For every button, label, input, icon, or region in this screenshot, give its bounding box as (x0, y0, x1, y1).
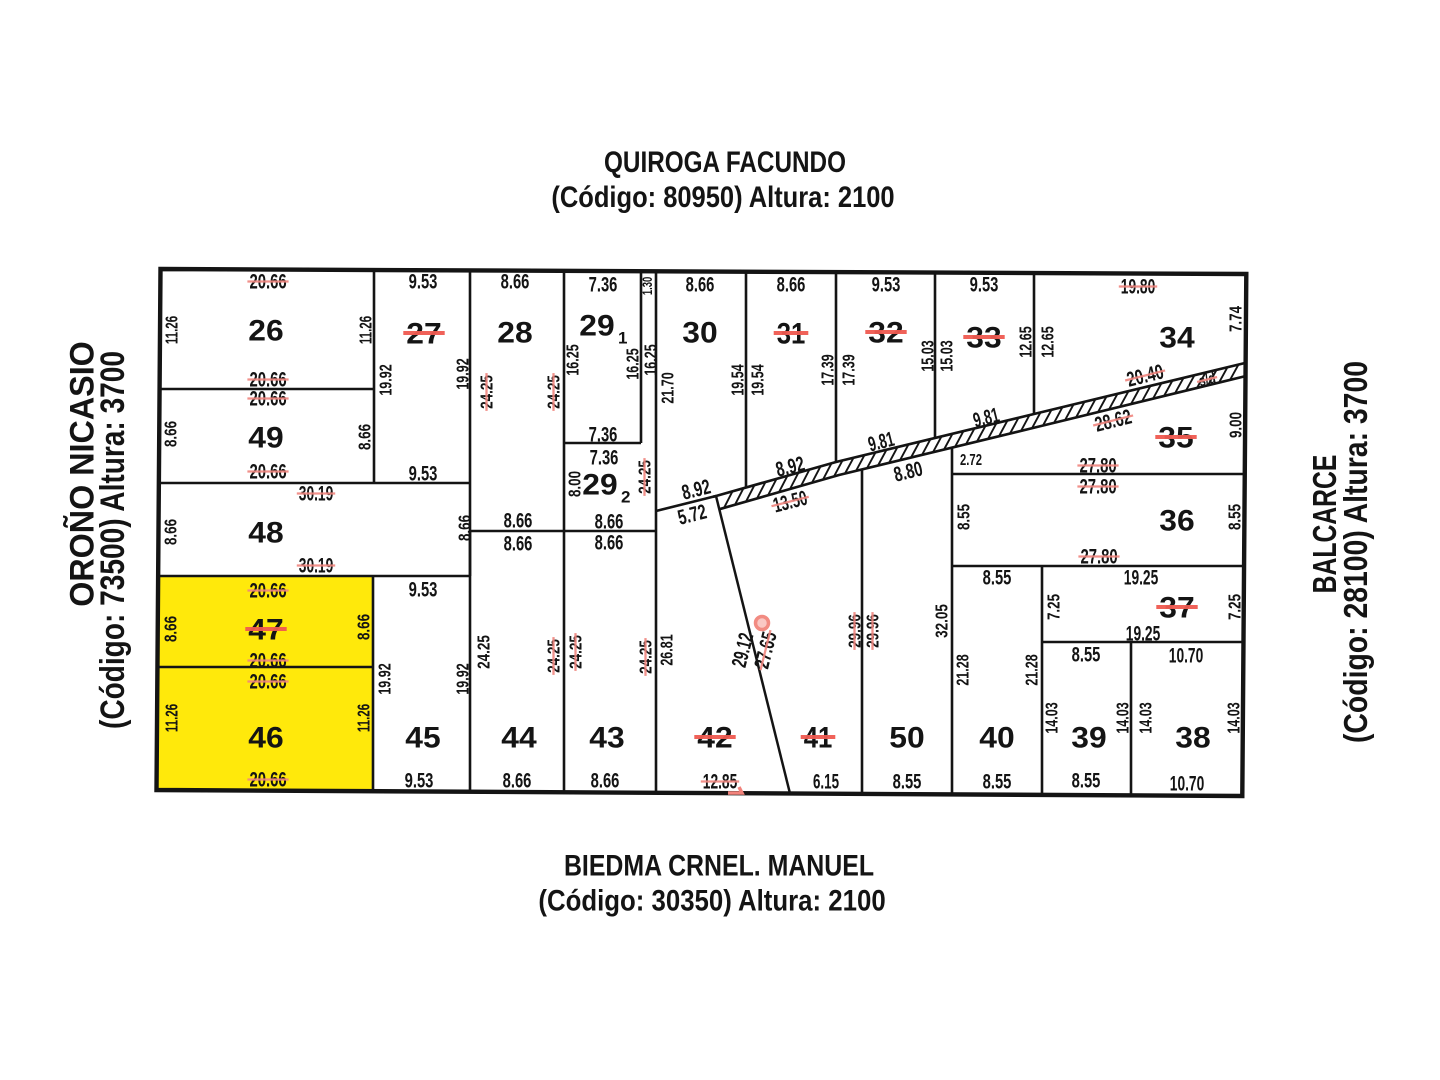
svg-text:8.55: 8.55 (1072, 643, 1101, 666)
svg-text:7.25: 7.25 (1226, 594, 1245, 620)
svg-text:14.03: 14.03 (1113, 702, 1133, 734)
svg-text:6.15: 6.15 (813, 770, 839, 794)
svg-text:9.53: 9.53 (970, 273, 999, 296)
svg-text:19.25: 19.25 (1124, 566, 1159, 590)
svg-text:19.92: 19.92 (453, 358, 473, 389)
svg-text:14.03: 14.03 (1136, 702, 1156, 734)
svg-text:(Código: 80950) Altura: 2100: (Código: 80950) Altura: 2100 (551, 180, 894, 213)
svg-text:11.26: 11.26 (162, 704, 182, 732)
svg-text:12.65: 12.65 (1016, 326, 1036, 358)
svg-text:9.00: 9.00 (1227, 412, 1246, 438)
svg-text:11.26: 11.26 (354, 704, 374, 732)
svg-text:26.81: 26.81 (657, 634, 677, 666)
svg-text:45: 45 (405, 721, 440, 755)
svg-text:19.92: 19.92 (376, 364, 396, 395)
svg-text:9.53: 9.53 (405, 769, 434, 792)
svg-text:2: 2 (621, 488, 630, 507)
svg-text:8.66: 8.66 (686, 273, 715, 296)
svg-text:9.53: 9.53 (409, 462, 438, 485)
svg-text:21.28: 21.28 (1022, 654, 1042, 686)
svg-text:29: 29 (579, 309, 614, 343)
svg-text:8.66: 8.66 (595, 531, 624, 554)
svg-text:11.26: 11.26 (356, 316, 376, 344)
svg-text:8.66: 8.66 (456, 515, 475, 541)
svg-text:15.03: 15.03 (918, 340, 938, 372)
svg-text:46: 46 (248, 721, 283, 755)
svg-text:8.66: 8.66 (504, 532, 533, 555)
svg-text:16.25: 16.25 (641, 344, 661, 376)
svg-text:12.65: 12.65 (1038, 326, 1058, 358)
svg-text:BIEDMA CRNEL. MANUEL: BIEDMA CRNEL. MANUEL (564, 848, 874, 882)
svg-text:(Código: 73500) Altura: 3700: (Código: 73500) Altura: 3700 (94, 351, 132, 729)
svg-text:36: 36 (1159, 504, 1194, 538)
svg-text:21.28: 21.28 (953, 654, 973, 686)
svg-text:8.55: 8.55 (983, 566, 1012, 589)
svg-text:14.03: 14.03 (1224, 702, 1244, 734)
svg-text:24.25: 24.25 (475, 635, 494, 669)
svg-text:48: 48 (248, 516, 283, 550)
svg-text:8.66: 8.66 (591, 769, 620, 792)
svg-text:7.36: 7.36 (589, 423, 618, 446)
svg-text:8.55: 8.55 (893, 770, 922, 793)
svg-text:32.05: 32.05 (933, 604, 952, 638)
svg-text:29: 29 (582, 468, 617, 502)
svg-text:17.39: 17.39 (839, 354, 859, 386)
svg-text:1.30: 1.30 (639, 277, 655, 296)
svg-text:43: 43 (589, 721, 624, 755)
svg-text:7.36: 7.36 (590, 446, 619, 469)
svg-text:9.53: 9.53 (872, 273, 901, 296)
svg-text:8.66: 8.66 (162, 519, 181, 545)
svg-text:10.70: 10.70 (1170, 772, 1205, 796)
svg-text:8.66: 8.66 (595, 510, 624, 533)
svg-text:QUIROGA FACUNDO: QUIROGA FACUNDO (604, 144, 846, 178)
svg-text:50: 50 (889, 721, 924, 755)
svg-text:7.74: 7.74 (1227, 306, 1246, 332)
svg-text:8.66: 8.66 (356, 424, 375, 450)
svg-text:17.39: 17.39 (818, 354, 838, 386)
svg-text:16.25: 16.25 (563, 344, 583, 376)
svg-text:39: 39 (1071, 721, 1106, 755)
svg-text:8.66: 8.66 (501, 270, 530, 293)
svg-text:40: 40 (979, 721, 1014, 755)
svg-text:8.66: 8.66 (777, 273, 806, 296)
svg-text:21.70: 21.70 (658, 372, 678, 403)
svg-text:7.25: 7.25 (1045, 594, 1064, 620)
svg-text:8.55: 8.55 (1072, 769, 1101, 792)
svg-text:10.70: 10.70 (1169, 644, 1204, 668)
svg-text:(Código: 28100) Altura: 3700: (Código: 28100) Altura: 3700 (1337, 361, 1375, 743)
svg-text:38: 38 (1175, 721, 1210, 755)
svg-text:34: 34 (1159, 321, 1194, 355)
svg-text:8.66: 8.66 (503, 769, 532, 792)
svg-text:19.54: 19.54 (728, 364, 748, 396)
svg-text:49: 49 (248, 421, 283, 455)
svg-text:15.03: 15.03 (937, 340, 957, 372)
svg-text:8.55: 8.55 (1226, 504, 1245, 530)
svg-text:44: 44 (501, 721, 536, 755)
svg-text:28: 28 (497, 316, 532, 350)
svg-text:16.25: 16.25 (623, 348, 643, 380)
svg-text:2.72: 2.72 (960, 450, 982, 469)
svg-text:19.92: 19.92 (453, 663, 473, 694)
svg-text:8.66: 8.66 (162, 616, 181, 642)
svg-text:19.54: 19.54 (748, 364, 768, 396)
svg-text:8.66: 8.66 (162, 421, 181, 447)
svg-text:9.53: 9.53 (409, 270, 438, 293)
svg-text:8.00: 8.00 (566, 471, 585, 497)
svg-text:1: 1 (618, 329, 627, 348)
svg-text:(Código: 30350) Altura: 2100: (Código: 30350) Altura: 2100 (538, 883, 885, 916)
svg-text:8.55: 8.55 (955, 504, 974, 530)
svg-text:11.26: 11.26 (162, 316, 182, 344)
svg-text:8.55: 8.55 (983, 770, 1012, 793)
svg-text:8.66: 8.66 (504, 509, 533, 532)
svg-text:8.66: 8.66 (355, 614, 374, 640)
svg-text:19.92: 19.92 (375, 663, 395, 694)
svg-text:7.36: 7.36 (589, 273, 618, 296)
svg-text:14.03: 14.03 (1042, 702, 1062, 734)
svg-text:30: 30 (682, 316, 717, 350)
svg-text:26: 26 (248, 314, 283, 348)
svg-text:19.25: 19.25 (1126, 622, 1161, 646)
svg-text:9.53: 9.53 (409, 578, 438, 601)
